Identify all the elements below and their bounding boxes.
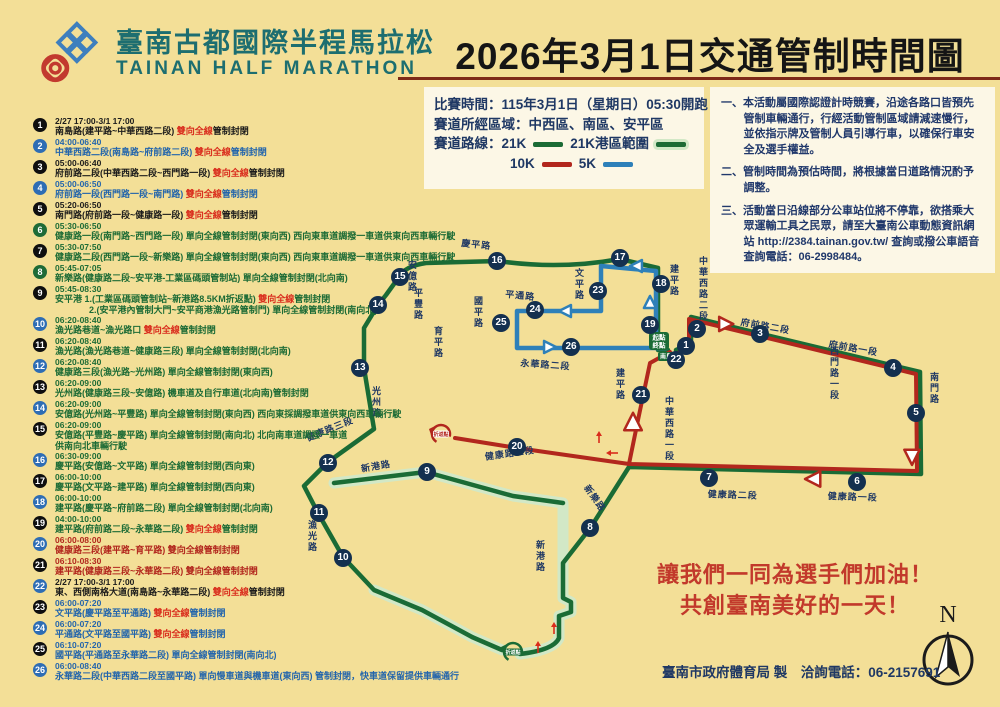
note-item-1: 一、本活動屬國際認證計時競賽，沿途各路口皆預先管制車輛通行，行經活動管制區域請減…	[721, 96, 984, 158]
closure-badge-23: 23	[33, 600, 47, 614]
legend-21k-port-label: 21K港區範圍	[570, 136, 649, 151]
legend-10k-swatch	[542, 162, 572, 167]
closure-time: 06:00-08:00	[55, 535, 513, 545]
closure-item-26: 2606:00-08:40永華路二段(中華西路二段至國平路) 單向慢車道與機車道…	[33, 661, 513, 682]
closure-item-20: 2006:00-08:00健康路三段(建平路~育平路) 雙向全線管制封閉	[33, 535, 513, 556]
closure-item-10: 1006:20-08:40漁光路巷道~漁光路口 雙向全線管制封閉	[33, 315, 513, 336]
closure-item-5: 505:20-06:50南門路(府前路一段~健康路一段) 雙向全線管制封閉	[33, 200, 513, 221]
closure-desc: 國平路(平通路至永華路二段) 單向全線管制封閉(南向北)	[55, 650, 513, 661]
closure-item-17: 1706:00-10:00慶平路(文平路~建平路) 單向全線管制封閉(西向東)	[33, 472, 513, 493]
closure-time: 06:20-09:00	[55, 378, 513, 388]
map-badge-3: 3	[751, 325, 769, 343]
road-label-21: 健康路一段	[828, 489, 878, 504]
closure-desc: 漁光路(漁光路巷道~健康路三段) 單向全線管制封閉(北向南)	[55, 346, 513, 357]
map-badge-10: 10	[334, 549, 352, 567]
closure-badge-18: 18	[33, 495, 47, 509]
legend-21k-swatch	[533, 142, 563, 147]
map-badge-11: 11	[310, 504, 328, 522]
closure-item-13: 1306:20-09:00光州路(健康路三段~安億路) 機車道及自行車道(北向南…	[33, 378, 513, 399]
direction-arrow-4	[544, 341, 556, 353]
direction-arrow-1	[644, 296, 656, 308]
closure-item-21: 2106:10-08:30建平路(健康路三段~永華路二段) 雙向全線管制封閉	[33, 556, 513, 577]
closure-time: 06:00-08:40	[55, 661, 513, 671]
map-badge-4: 4	[884, 359, 902, 377]
legend-5k-swatch	[603, 162, 633, 167]
closure-badge-25: 25	[33, 642, 47, 656]
closure-desc: 永華路二段(中華西路二段至國平路) 單向慢車道與機車道(東向西) 管制封閉，快車…	[55, 671, 513, 682]
closure-item-14: 1406:20-09:00安億路(光州路~平豐路) 單向全線管制封閉(東向西) …	[33, 399, 513, 420]
small-direction-tick-1	[596, 431, 602, 443]
closure-item-19: 1904:00-10:00建平路(府前路二段~永華路二段) 雙向全線管制封閉	[33, 514, 513, 535]
map-badge-6: 6	[848, 473, 866, 491]
legend-10k-label: 10K	[510, 156, 535, 171]
closure-item-3: 305:00-06:40府前路二段(中華西路二段~西門路一段) 雙向全線管制封閉	[33, 158, 513, 179]
map-badge-18: 18	[652, 275, 670, 293]
closure-badge-21: 21	[33, 558, 47, 572]
closure-item-23: 2306:00-07:20文平路(慶平路至平通路) 雙向全線管制封閉	[33, 598, 513, 619]
closure-desc: 府前路二段(中華西路二段~西門路一段) 雙向全線管制封閉	[55, 168, 513, 179]
closure-badge-8: 8	[33, 265, 47, 279]
closure-badge-17: 17	[33, 474, 47, 488]
closure-time: 05:00-06:50	[55, 179, 513, 189]
road-label-7: 中華西路二段	[697, 256, 710, 322]
closure-item-12: 1206:20-08:40健康路三段(漁光路~光州路) 單向全線管制封閉(東向西…	[33, 357, 513, 378]
closure-desc: 文平路(慶平路至平通路) 雙向全線管制封閉	[55, 608, 513, 619]
closure-time: 05:45-08:30	[55, 284, 513, 294]
map-badge-9: 9	[418, 463, 436, 481]
closure-item-11: 1106:20-08:40漁光路(漁光路巷道~健康路三段) 單向全線管制封閉(北…	[33, 336, 513, 357]
direction-arrow-7	[904, 450, 919, 465]
closure-badge-2: 2	[33, 139, 47, 153]
closure-time: 06:20-08:40	[55, 315, 513, 325]
closure-badge-26: 26	[33, 663, 47, 677]
closure-time: 06:00-10:00	[55, 493, 513, 503]
closure-badge-3: 3	[33, 160, 47, 174]
small-direction-tick-4	[551, 622, 557, 634]
note-item-2: 二、管制時間為預估時間，將根據當日道路情況酌予調整。	[721, 165, 984, 196]
closure-badge-4: 4	[33, 181, 47, 195]
closure-badge-1: 1	[33, 118, 47, 132]
closure-desc: 健康路二段(西門路一段~新樂路) 單向全線管制封閉(東向西) 西向東車道調撥一車…	[55, 252, 513, 263]
event-logo: 臺南古都國際半程馬拉松 TAINAN HALF MARATHON	[36, 18, 435, 92]
closure-item-1: 12/27 17:00-3/1 17:00南島路(建平路~中華西路二段) 雙向全…	[33, 116, 513, 137]
map-badge-15: 15	[391, 268, 409, 286]
closure-item-18: 1806:00-10:00建平路(慶平路~府前路二段) 單向全線管制封閉(北向南…	[33, 493, 513, 514]
closure-item-9: 905:45-08:30安平港 1.(工業區碼頭管制站~新港路8.5KM折返點)…	[33, 284, 513, 315]
closure-time: 06:20-09:00	[55, 399, 513, 409]
closure-item-2: 204:00-06:40中華西路二段(南島路~府前路二段) 雙向全線管制封閉	[33, 137, 513, 158]
direction-arrow-3	[559, 305, 571, 317]
closure-time: 06:10-07:20	[55, 640, 513, 650]
road-label-2: 文平路	[573, 268, 586, 301]
closure-time: 06:20-09:00	[55, 420, 513, 430]
closure-time: 06:30-09:00	[55, 451, 513, 461]
closure-desc: 中華西路二段(南島路~府前路二段) 雙向全線管制封閉	[55, 147, 513, 158]
closure-desc: 安億路(光州路~平豐路) 單向全線管制封閉(東向西) 西向東採調撥車道供東向西車…	[55, 409, 513, 420]
cheer-line1: 讓我們一同為選手們加油！	[640, 560, 950, 591]
closure-desc: 健康路一段(南門路~西門路一段) 單向全線管制封閉(東向西) 西向東車道調撥一車…	[55, 231, 513, 242]
map-badge-25: 25	[492, 314, 510, 332]
closure-badge-16: 16	[33, 453, 47, 467]
closure-item-16: 1606:30-09:00慶平路(安億路~文平路) 單向全線管制封閉(西向東)	[33, 451, 513, 472]
closure-time: 2/27 17:00-3/1 17:00	[55, 577, 513, 587]
closure-desc: 東、西側南格大道(南島路~永華路二段) 雙向全線管制封閉	[55, 587, 513, 598]
closure-badge-6: 6	[33, 223, 47, 237]
closure-time: 2/27 17:00-3/1 17:00	[55, 116, 513, 126]
svg-text:起點: 起點	[652, 333, 667, 342]
legend-21k-port-swatch	[656, 142, 686, 147]
closure-time: 06:00-10:00	[55, 472, 513, 482]
map-badge-2: 2	[688, 320, 706, 338]
title-underline	[398, 77, 1000, 80]
closure-time: 06:00-07:20	[55, 619, 513, 629]
closure-badge-12: 12	[33, 359, 47, 373]
closure-item-15: 1506:20-09:00安億路(平豐路~慶平路) 單向全線管制封閉(南向北) …	[33, 420, 513, 451]
closure-time: 05:20-06:50	[55, 200, 513, 210]
road-label-9: 中華西路一段	[663, 396, 676, 462]
closure-badge-13: 13	[33, 380, 47, 394]
closure-time: 06:20-08:40	[55, 336, 513, 346]
closure-badge-10: 10	[33, 317, 47, 331]
closure-desc: 建平路(府前路二段~永華路二段) 雙向全線管制封閉	[55, 524, 513, 535]
small-direction-tick-3	[535, 641, 541, 653]
map-badge-5: 5	[907, 404, 925, 422]
closure-desc: 南島路(建平路~中華西路二段) 雙向全線管制封閉	[55, 126, 513, 137]
page-title: 2026年3月1日交通管制時間圖	[420, 26, 1000, 80]
closure-item-6: 605:30-06:50健康路一段(南門路~西門路一段) 單向全線管制封閉(東向…	[33, 221, 513, 242]
map-badge-20: 20	[508, 438, 526, 456]
cheer-text: 讓我們一同為選手們加油！ 共創臺南美好的一天！	[640, 560, 950, 622]
cheer-line2: 共創臺南美好的一天！	[640, 591, 950, 622]
closure-list: 12/27 17:00-3/1 17:00南島路(建平路~中華西路二段) 雙向全…	[33, 116, 513, 682]
road-label-6: 建平路	[668, 264, 681, 297]
direction-arrow-5	[719, 317, 733, 331]
closure-desc: 建平路(健康路三段~永華路二段) 雙向全線管制封閉	[55, 566, 513, 577]
closure-desc: 健康路三段(建平路~育平路) 雙向全線管制封閉	[55, 545, 513, 556]
closure-desc: 府前路一段(西門路一段~南門路) 雙向全線管制封閉	[55, 189, 513, 200]
closure-desc: 安平港 1.(工業區碼頭管制站~新港路8.5KM折返點) 雙向全線管制封閉	[55, 294, 513, 305]
map-badge-23: 23	[589, 282, 607, 300]
small-direction-tick-2	[606, 450, 618, 456]
closure-badge-15: 15	[33, 422, 47, 436]
closure-desc: 建平路(慶平路~府前路二段) 單向全線管制封閉(北向南)	[55, 503, 513, 514]
road-label-17: 新港路	[534, 540, 547, 573]
closure-time: 04:00-06:40	[55, 137, 513, 147]
closure-time: 05:45-07:05	[55, 263, 513, 273]
closure-desc: 新樂路(健康路二段~安平港-工業區碼頭管制站) 單向全線管制封閉(北向南)	[55, 273, 513, 284]
map-badge-12: 12	[319, 454, 337, 472]
map-badge-16: 16	[488, 252, 506, 270]
map-badge-8: 8	[581, 519, 599, 537]
road-label-8: 建平路	[614, 368, 627, 401]
road-label-18: 新樂路	[581, 482, 609, 514]
closure-badge-19: 19	[33, 516, 47, 530]
closure-time: 05:30-06:50	[55, 221, 513, 231]
map-badge-7: 7	[700, 469, 718, 487]
closure-desc-line2: 2.(安平港內管制大門~安平商港漁光路管制門) 單向全線管制封閉(南向北)	[89, 305, 513, 316]
closure-desc: 健康路三段(漁光路~光州路) 單向全線管制封閉(東向西)	[55, 367, 513, 378]
closure-item-8: 805:45-07:05新樂路(健康路二段~安平港-工業區碼頭管制站) 單向全線…	[33, 263, 513, 284]
logo-knot-icon	[36, 18, 106, 92]
note-item-3: 三、活動當日沿線部分公車站位將不停靠，欲搭乘大眾運輸工具之民眾，請至大臺南公車動…	[721, 204, 984, 266]
closure-item-4: 405:00-06:50府前路一段(西門路一段~南門路) 雙向全線管制封閉	[33, 179, 513, 200]
closure-desc: 光州路(健康路三段~安億路) 機車道及自行車道(北向南)管制封閉	[55, 388, 513, 399]
road-label-23: 南門路	[928, 372, 941, 405]
svg-text:終點: 終點	[653, 341, 667, 350]
closure-desc: 安億路(平豐路~慶平路) 單向全線管制封閉(南向北) 北向南車道調撥一車道	[55, 430, 513, 441]
map-badge-26: 26	[562, 338, 580, 356]
closure-item-7: 705:30-07:50健康路二段(西門路一段~新樂路) 單向全線管制封閉(東向…	[33, 242, 513, 263]
closure-desc: 平通路(文平路至國平路) 雙向全線管制封閉	[55, 629, 513, 640]
legend-5k-label: 5K	[579, 156, 596, 171]
map-badge-24: 24	[526, 301, 544, 319]
closure-badge-9: 9	[33, 286, 47, 300]
closure-item-22: 222/27 17:00-3/1 17:00東、西側南格大道(南島路~永華路二段…	[33, 577, 513, 598]
closure-time: 04:00-10:00	[55, 514, 513, 524]
credit-text: 臺南市政府體育局 製 洽詢電話：06-2157691	[662, 661, 940, 681]
map-badge-21: 21	[632, 386, 650, 404]
direction-arrow-2	[630, 260, 642, 272]
map-badge-14: 14	[369, 296, 387, 314]
closure-time: 06:10-08:30	[55, 556, 513, 566]
map-badge-17: 17	[611, 249, 629, 267]
closure-desc: 慶平路(文平路~建平路) 單向全線管制封閉(西向東)	[55, 482, 513, 493]
legend-race-time: 比賽時間：115年3月1日（星期日）05:30開跑	[434, 95, 694, 115]
closure-time: 06:00-07:20	[55, 598, 513, 608]
map-badge-22: 22	[667, 351, 685, 369]
map-badge-19: 19	[641, 316, 659, 334]
direction-arrow-8	[624, 413, 642, 430]
traffic-control-poster: 臺南古都國際半程馬拉松 TAINAN HALF MARATHON 2026年3月…	[0, 0, 1000, 707]
map-badge-13: 13	[351, 359, 369, 377]
closure-item-24: 2406:00-07:20平通路(文平路至國平路) 雙向全線管制封閉	[33, 619, 513, 640]
event-title: 臺南古都國際半程馬拉松 TAINAN HALF MARATHON	[116, 29, 435, 81]
closure-badge-20: 20	[33, 537, 47, 551]
closure-badge-11: 11	[33, 338, 47, 352]
event-title-zh: 臺南古都國際半程馬拉松	[116, 29, 435, 59]
closure-badge-5: 5	[33, 202, 47, 216]
closure-badge-22: 22	[33, 579, 47, 593]
closure-desc: 漁光路巷道~漁光路口 雙向全線管制封閉	[55, 325, 513, 336]
closure-time: 06:20-08:40	[55, 357, 513, 367]
closure-badge-24: 24	[33, 621, 47, 635]
direction-arrow-6	[805, 471, 820, 486]
event-title-en: TAINAN HALF MARATHON	[116, 58, 435, 81]
road-label-20: 健康路二段	[708, 487, 758, 502]
closure-badge-7: 7	[33, 244, 47, 258]
road-label-5: 永華路二段	[520, 356, 571, 372]
closure-desc: 慶平路(安億路~文平路) 單向全線管制封閉(西向東)	[55, 461, 513, 472]
closure-time: 05:00-06:40	[55, 158, 513, 168]
closure-badge-14: 14	[33, 401, 47, 415]
closure-time: 05:30-07:50	[55, 242, 513, 252]
closure-item-25: 2506:10-07:20國平路(平通路至永華路二段) 單向全線管制封閉(南向北…	[33, 640, 513, 661]
closure-desc: 南門路(府前路一段~健康路一段) 雙向全線管制封閉	[55, 210, 513, 221]
closure-desc-line2: 供南向北車輛行駛	[55, 441, 513, 452]
road-label-22: 西門路一段	[828, 346, 841, 401]
notes-panel: 一、本活動屬國際認證計時競賽，沿途各路口皆預先管制車輛通行，行經活動管制區域請減…	[710, 87, 995, 273]
